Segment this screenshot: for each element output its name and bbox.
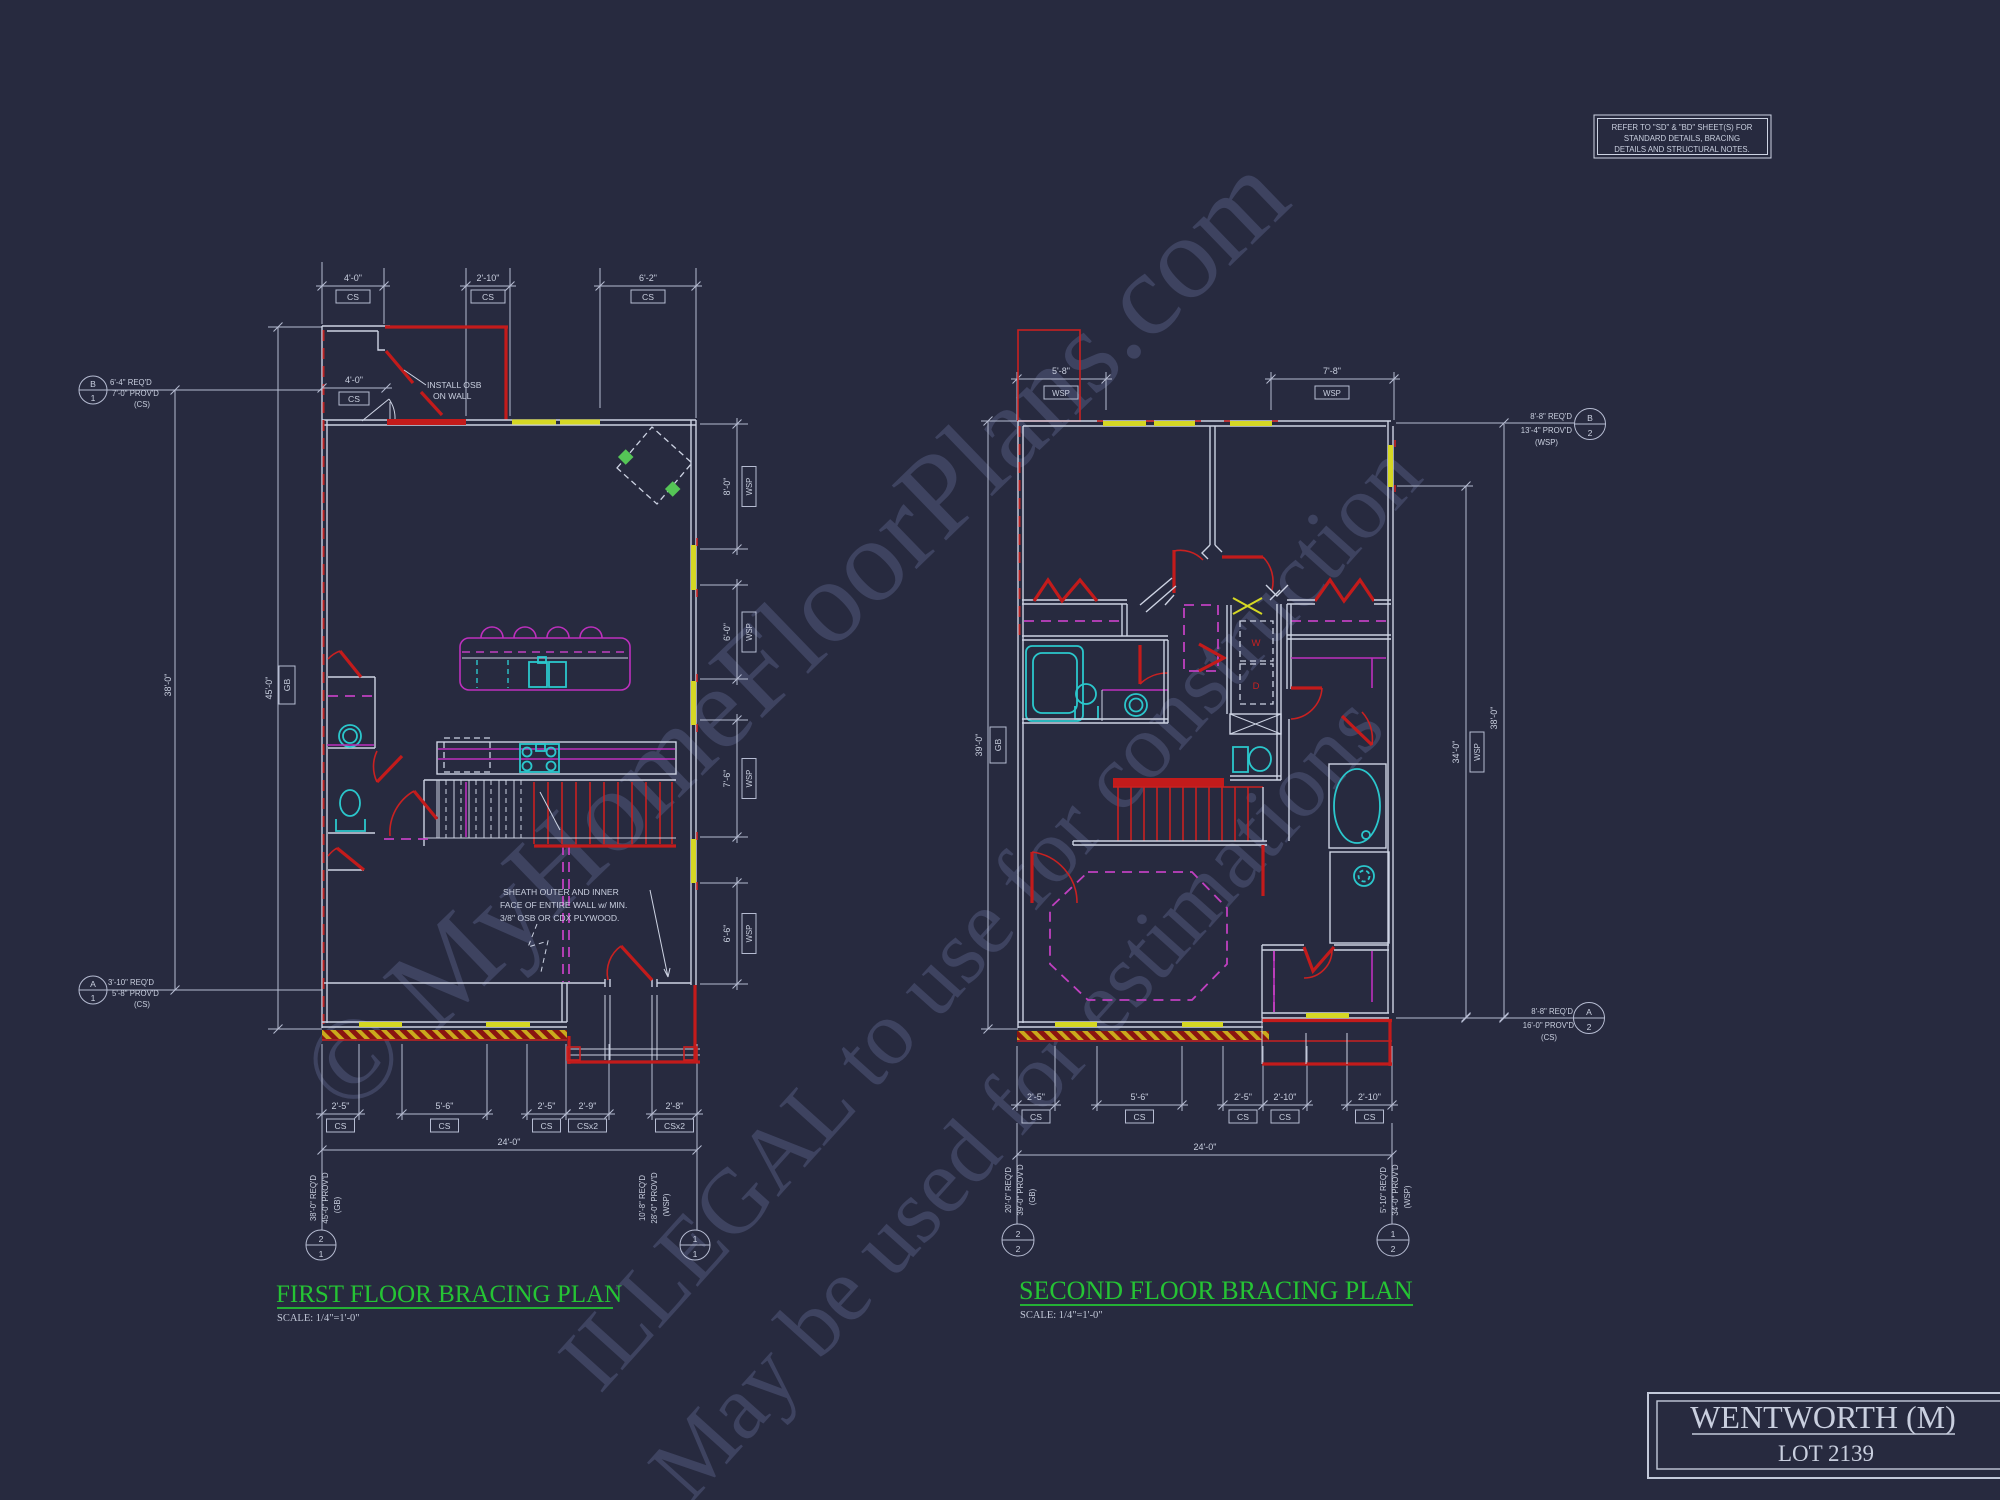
svg-text:1: 1 (1391, 1229, 1396, 1239)
svg-text:6'-2": 6'-2" (639, 273, 657, 283)
svg-text:WSP: WSP (745, 478, 754, 496)
svg-text:39'-0" PROV'D: 39'-0" PROV'D (1016, 1164, 1025, 1216)
svg-text:CS: CS (335, 1121, 347, 1131)
svg-text:20'-0" REQ'D: 20'-0" REQ'D (1004, 1167, 1013, 1213)
svg-text:CS: CS (439, 1121, 451, 1131)
svg-text:6'-4" REQ'D: 6'-4" REQ'D (110, 378, 152, 387)
svg-text:8'-0": 8'-0" (722, 478, 732, 496)
svg-text:2'-8": 2'-8" (666, 1101, 684, 1111)
svg-text:(CS): (CS) (134, 400, 150, 409)
svg-text:8'-8" REQ'D: 8'-8" REQ'D (1530, 412, 1572, 421)
svg-text:CS: CS (1134, 1112, 1146, 1122)
svg-text:(WSP): (WSP) (1403, 1185, 1412, 1208)
svg-text:SCALE: 1/4"=1'-0": SCALE: 1/4"=1'-0" (1020, 1310, 1103, 1321)
svg-text:SCALE: 1/4"=1'-0": SCALE: 1/4"=1'-0" (277, 1313, 360, 1324)
svg-text:2'-5": 2'-5" (1027, 1092, 1045, 1102)
svg-text:38'-0": 38'-0" (163, 674, 173, 697)
svg-text:WSP: WSP (745, 770, 754, 788)
svg-text:CS: CS (482, 292, 494, 302)
svg-text:2: 2 (1587, 1022, 1592, 1032)
svg-text:2'-10": 2'-10" (1274, 1092, 1297, 1102)
svg-text:5'-8": 5'-8" (1052, 366, 1070, 376)
svg-text:7'-0" PROV'D: 7'-0" PROV'D (112, 389, 159, 398)
svg-text:3'-10" REQ'D: 3'-10" REQ'D (108, 978, 154, 987)
svg-text:1: 1 (693, 1249, 698, 1259)
svg-text:38'-0": 38'-0" (1489, 707, 1499, 730)
svg-text:2'-5": 2'-5" (1234, 1092, 1252, 1102)
svg-text:A: A (90, 979, 96, 989)
svg-text:7'-8": 7'-8" (1323, 366, 1341, 376)
svg-text:(WSP): (WSP) (662, 1193, 671, 1216)
svg-text:FIRST FLOOR BRACING PLAN: FIRST FLOOR BRACING PLAN (276, 1281, 622, 1308)
svg-text:2: 2 (1391, 1244, 1396, 1254)
svg-text:16'-0" PROV'D: 16'-0" PROV'D (1523, 1021, 1575, 1030)
svg-text:D: D (1253, 681, 1260, 692)
svg-text:SECOND FLOOR BRACING PLAN: SECOND FLOOR BRACING PLAN (1019, 1276, 1413, 1305)
svg-text:REFER TO "SD" & "BD" SHEET(S): REFER TO "SD" & "BD" SHEET(S) FOR (1612, 123, 1753, 132)
svg-text:2'-10": 2'-10" (1358, 1092, 1381, 1102)
svg-text:38'-0" REQ'D: 38'-0" REQ'D (309, 1175, 318, 1221)
svg-text:CS: CS (1364, 1112, 1376, 1122)
svg-text:2: 2 (319, 1234, 324, 1244)
svg-text:2: 2 (1016, 1229, 1021, 1239)
svg-text:6'-6": 6'-6" (722, 925, 732, 943)
svg-text:ON WALL: ON WALL (433, 391, 472, 401)
svg-text:(CS): (CS) (1541, 1033, 1557, 1042)
svg-text:DETAILS AND STRUCTURAL NOTES.: DETAILS AND STRUCTURAL NOTES. (1614, 145, 1750, 154)
svg-text:CS: CS (348, 394, 360, 404)
svg-text:WSP: WSP (1052, 389, 1070, 398)
svg-text:WSP: WSP (1473, 743, 1482, 761)
svg-text:4'-0": 4'-0" (345, 375, 363, 385)
svg-text:8'-8" REQ'D: 8'-8" REQ'D (1531, 1007, 1573, 1016)
svg-text:4'-0": 4'-0" (344, 273, 362, 283)
svg-text:24'-0": 24'-0" (1194, 1142, 1217, 1152)
svg-text:7'-6": 7'-6" (722, 770, 732, 788)
svg-text:CSx2: CSx2 (664, 1121, 685, 1131)
svg-text:1: 1 (91, 393, 96, 403)
svg-text:WSP: WSP (745, 925, 754, 943)
svg-text:45'-0" PROV'D: 45'-0" PROV'D (321, 1172, 330, 1224)
svg-text:STANDARD DETAILS, BRACING: STANDARD DETAILS, BRACING (1624, 134, 1740, 143)
svg-text:W: W (1252, 638, 1261, 649)
svg-text:2: 2 (1588, 428, 1593, 438)
svg-text:24'-0": 24'-0" (498, 1137, 521, 1147)
svg-text:WSP: WSP (745, 623, 754, 641)
svg-text:34'-0" PROV'D: 34'-0" PROV'D (1391, 1164, 1400, 1216)
svg-text:CS: CS (1237, 1112, 1249, 1122)
svg-text:(WSP): (WSP) (1535, 438, 1558, 447)
svg-text:28'-0" PROV'D: 28'-0" PROV'D (650, 1172, 659, 1224)
svg-text:SHEATH OUTER AND INNER: SHEATH OUTER AND INNER (503, 887, 619, 897)
svg-text:GB: GB (993, 739, 1003, 752)
svg-text:5'-10" REQ'D: 5'-10" REQ'D (1379, 1167, 1388, 1213)
svg-text:B: B (90, 379, 96, 389)
svg-text:13'-4" PROV'D: 13'-4" PROV'D (1521, 426, 1573, 435)
svg-text:(CS): (CS) (134, 1000, 150, 1009)
svg-text:39'-0": 39'-0" (974, 734, 984, 757)
svg-text:CS: CS (347, 292, 359, 302)
svg-text:2: 2 (1016, 1244, 1021, 1254)
svg-text:2'-10": 2'-10" (477, 273, 500, 283)
svg-text:CSx2: CSx2 (577, 1121, 598, 1131)
svg-text:2'-5": 2'-5" (332, 1101, 350, 1111)
svg-text:6'-0": 6'-0" (722, 623, 732, 641)
svg-text:2'-9": 2'-9" (579, 1101, 597, 1111)
svg-text:FACE OF ENTIRE WALL w/ MIN.: FACE OF ENTIRE WALL w/ MIN. (500, 900, 627, 910)
svg-text:2'-5": 2'-5" (538, 1101, 556, 1111)
svg-text:3/8" OSB OR CDX PLYWOOD.: 3/8" OSB OR CDX PLYWOOD. (500, 913, 619, 923)
svg-text:(GB): (GB) (333, 1196, 342, 1213)
svg-text:INSTALL OSB: INSTALL OSB (427, 380, 482, 390)
svg-text:CS: CS (1030, 1112, 1042, 1122)
svg-text:B: B (1587, 413, 1593, 423)
svg-text:10'-8" REQ'D: 10'-8" REQ'D (638, 1175, 647, 1221)
svg-text:CS: CS (642, 292, 654, 302)
svg-text:WENTWORTH (M): WENTWORTH (M) (1690, 1399, 1956, 1435)
svg-text:5'-6": 5'-6" (1131, 1092, 1149, 1102)
svg-text:5'-8" PROV'D: 5'-8" PROV'D (112, 989, 159, 998)
svg-text:1: 1 (319, 1249, 324, 1259)
svg-text:(GB): (GB) (1028, 1188, 1037, 1205)
svg-text:34'-0": 34'-0" (1451, 741, 1461, 764)
svg-text:CS: CS (541, 1121, 553, 1131)
svg-text:45'-0": 45'-0" (264, 677, 274, 700)
svg-text:CS: CS (1279, 1112, 1291, 1122)
svg-text:5'-6": 5'-6" (436, 1101, 454, 1111)
svg-text:WSP: WSP (1323, 389, 1341, 398)
svg-text:LOT 2139: LOT 2139 (1778, 1441, 1874, 1466)
svg-text:GB: GB (282, 679, 292, 692)
svg-text:1: 1 (91, 993, 96, 1003)
svg-text:1: 1 (693, 1234, 698, 1244)
svg-text:A: A (1586, 1007, 1592, 1017)
